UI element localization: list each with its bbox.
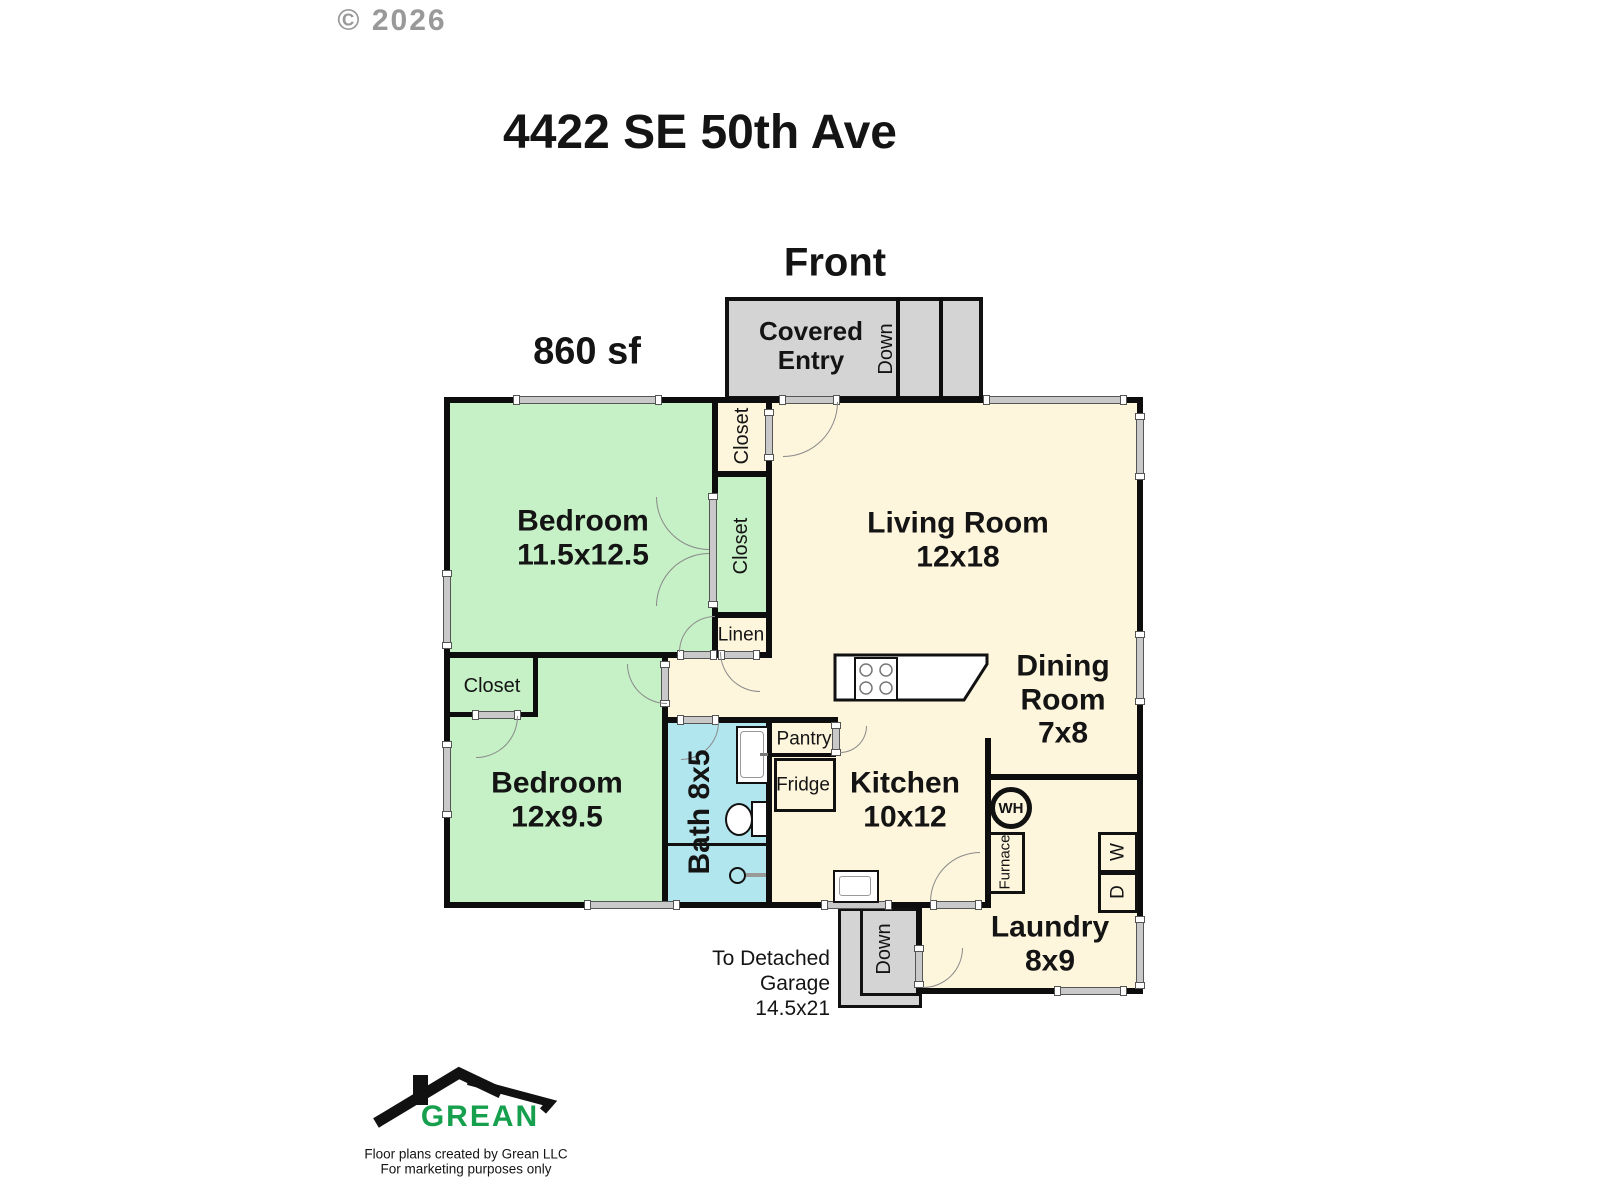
bath-label: Bath 8x5: [683, 749, 717, 874]
wall: [766, 459, 772, 658]
wall: [712, 471, 772, 477]
wall: [985, 774, 1143, 780]
room-dims: 10x12: [850, 800, 960, 834]
laundry-label: Laundry 8x9: [991, 910, 1109, 977]
window: [985, 396, 1125, 404]
bedroom-door-opening: [679, 651, 715, 659]
room-name: Bedroom: [517, 504, 649, 538]
room-name: Living Room: [867, 506, 1049, 540]
window: [1136, 633, 1144, 703]
wall: [772, 753, 836, 757]
entry-down-label: Down: [875, 323, 897, 374]
wall: [533, 655, 538, 717]
garage-down-label: Down: [873, 923, 895, 974]
bath-faucet: [760, 753, 768, 756]
room-dims: 12x18: [867, 540, 1049, 574]
garage-note-line: 14.5x21: [630, 996, 830, 1021]
wall: [662, 705, 668, 908]
wall: [449, 712, 474, 717]
room-dims: 11.5x12.5: [517, 538, 649, 572]
closet-door-opening: [709, 495, 717, 606]
bedroom2-label: Bedroom 12x9.5: [491, 766, 623, 833]
room-name: Laundry: [991, 910, 1109, 944]
bedroom2-closet-label: Closet: [464, 675, 521, 697]
dryer-label: D: [1107, 885, 1128, 899]
room-dims: 7x8: [993, 717, 1133, 751]
wall: [717, 717, 838, 723]
kitchen-label: Kitchen 10x12: [850, 766, 960, 833]
entry-closet-label: Closet: [731, 408, 753, 465]
brand-disclaimer: For marketing purposes only: [380, 1161, 551, 1176]
floor-plan: WH © 2026 4422 SE 50th Ave Front 860 sf …: [0, 0, 1600, 1200]
fridge-label: Fridge: [776, 774, 830, 795]
entry-step-divider: [939, 297, 943, 400]
kitchen-sink-basin: [839, 876, 871, 896]
tub-faucet: [746, 873, 766, 877]
window: [1136, 415, 1144, 478]
toilet-tank: [751, 801, 768, 837]
wall: [916, 905, 922, 947]
brand-name: GREAN: [421, 1100, 539, 1134]
dining-room-label: Dining Room 7x8: [993, 650, 1133, 751]
window: [443, 743, 451, 816]
room-name: Dining Room: [993, 650, 1133, 717]
garage-note-line: Garage: [630, 971, 830, 996]
wall: [444, 652, 679, 658]
bedroom1-label: Bedroom 11.5x12.5: [517, 504, 649, 571]
room-name: Bedroom: [491, 766, 623, 800]
water-heater: WH: [990, 787, 1032, 829]
furnace-label: Furnace: [998, 834, 1015, 889]
room-name: Kitchen: [850, 766, 960, 800]
page-title: 4422 SE 50th Ave: [503, 106, 897, 160]
copyright: © 2026: [337, 4, 446, 38]
wall: [712, 612, 772, 618]
stove: [855, 658, 897, 700]
wall: [519, 712, 538, 717]
washer-label: W: [1107, 843, 1128, 861]
window: [515, 396, 660, 404]
garage-note: To Detached Garage 14.5x21: [630, 946, 830, 1021]
pantry-label: Pantry: [777, 728, 832, 749]
front-label: Front: [784, 241, 886, 286]
living-room-label: Living Room 12x18: [867, 506, 1049, 573]
window: [1056, 987, 1125, 995]
kitchen-counter: [830, 648, 992, 706]
room-dims: 8x9: [991, 944, 1109, 978]
laundry-door-opening: [915, 947, 923, 986]
garage-note-line: To Detached: [630, 946, 830, 971]
entry-closet-opening: [765, 411, 773, 459]
tub-drain: [729, 867, 746, 884]
kitchen-door-opening: [932, 901, 980, 909]
covered-entry-label: Covered Entry: [749, 317, 874, 375]
window: [586, 901, 678, 909]
room-dims: 12x9.5: [491, 800, 623, 834]
bedroom1-closet-label: Closet: [730, 518, 752, 575]
toilet-bowl: [725, 803, 753, 836]
window: [443, 572, 451, 647]
window: [1136, 918, 1144, 987]
water-heater-label: WH: [999, 800, 1024, 817]
linen-label: Linen: [718, 624, 765, 645]
brand-tagline: Floor plans created by Grean LLC: [364, 1146, 567, 1161]
wall: [712, 397, 718, 495]
area-label: 860 sf: [533, 331, 641, 374]
pantry-door-opening: [832, 724, 840, 754]
